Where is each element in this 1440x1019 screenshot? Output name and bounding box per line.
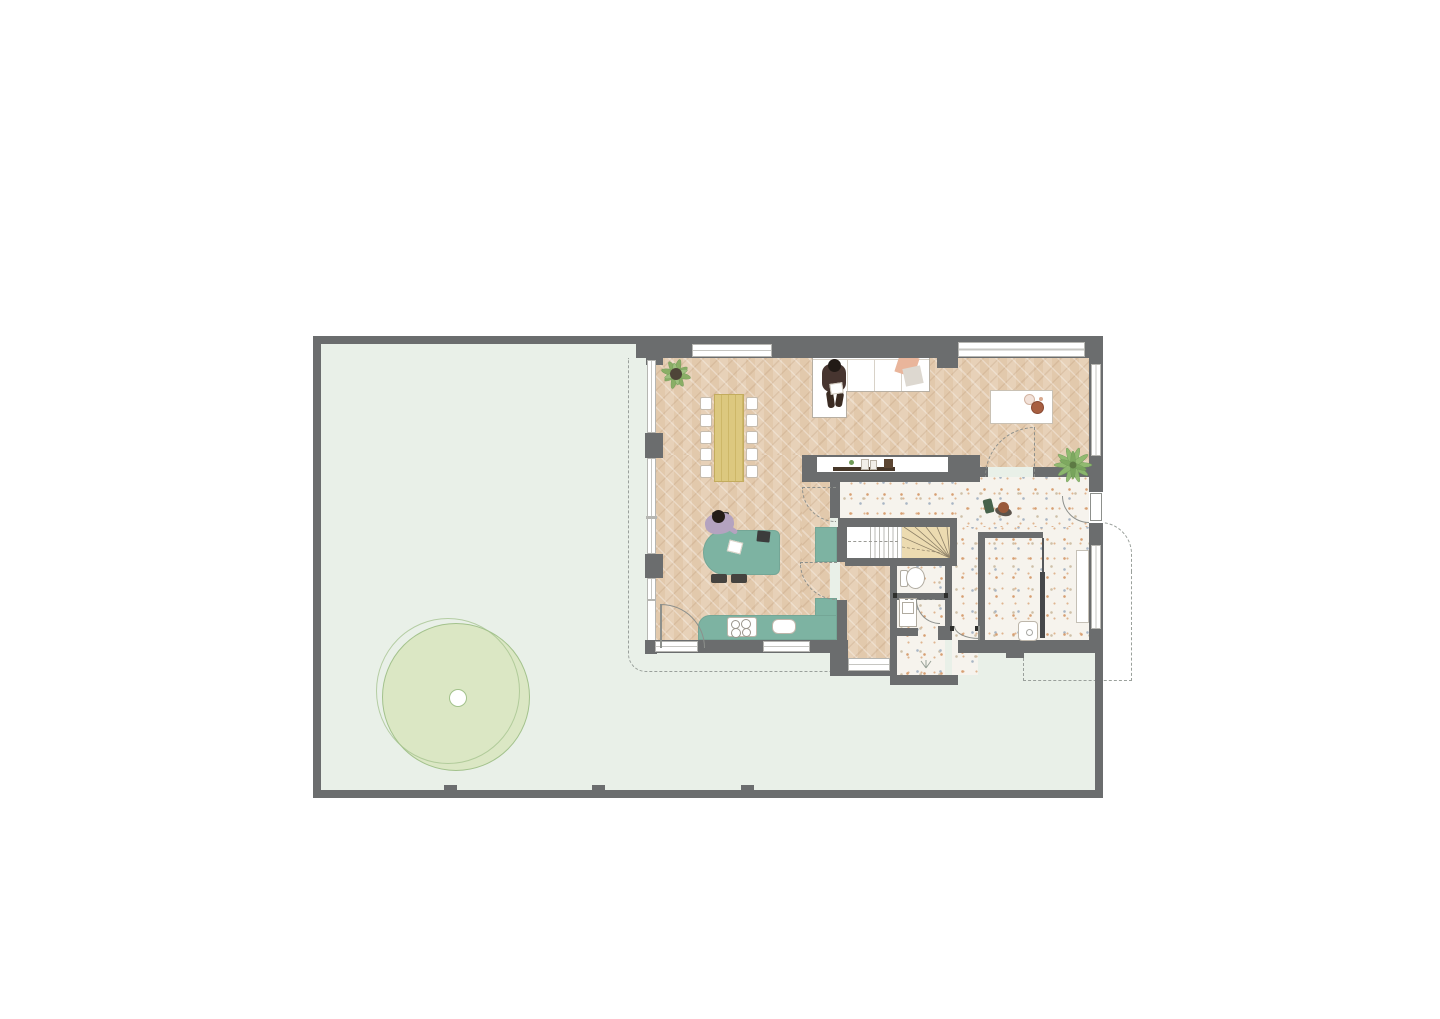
stairs-direction-dash xyxy=(848,541,898,542)
boundary-pier xyxy=(741,785,754,790)
garden-tree-canopy-2 xyxy=(376,618,520,764)
book-on-lap xyxy=(829,382,843,395)
stair-left-wall xyxy=(837,527,847,562)
window-mullion xyxy=(646,516,657,519)
dining-chair xyxy=(700,431,712,444)
corridor-corner-wall xyxy=(830,640,848,676)
office-pier xyxy=(957,455,980,482)
niche-frame xyxy=(861,459,869,470)
window-corridor xyxy=(848,658,890,671)
floor-plan-canvas xyxy=(0,0,1440,1019)
storage-top-wall xyxy=(985,532,1043,538)
dining-chair xyxy=(700,397,712,410)
dining-chair xyxy=(746,431,758,444)
boundary-wall-left xyxy=(313,336,321,798)
stair-right-wall xyxy=(950,518,957,566)
window-top-living xyxy=(692,344,772,357)
vestibule-door-leaf xyxy=(978,626,980,640)
stair-bottom-wall xyxy=(845,558,950,566)
window-top-office xyxy=(958,342,1085,357)
front-door-leaf xyxy=(1090,493,1102,521)
dining-chair xyxy=(700,465,712,478)
cooktop-burner xyxy=(742,628,751,637)
niche-frame xyxy=(870,460,877,470)
toilet-bowl xyxy=(906,567,925,589)
office-dot xyxy=(1039,397,1043,401)
hall-opening-leaf-upper xyxy=(802,487,836,488)
cooktop-burner xyxy=(731,628,741,638)
corridor-window-sill xyxy=(848,671,890,676)
left-pier-1 xyxy=(645,433,663,458)
utility-door-leaf-dashed xyxy=(905,599,935,600)
person-in-hall-head xyxy=(998,502,1009,513)
dining-chair xyxy=(746,465,758,478)
floor-hall-upper xyxy=(840,482,957,518)
shower-drain xyxy=(1026,629,1033,636)
window-right-hall xyxy=(1091,545,1101,629)
desk-chair xyxy=(711,574,727,583)
sofa-cushion-gray xyxy=(902,365,923,386)
window-left-2 xyxy=(647,458,656,554)
dining-chair xyxy=(746,414,758,427)
dining-chair xyxy=(700,448,712,461)
boundary-pier xyxy=(444,785,457,790)
boundary-pier xyxy=(592,785,605,790)
wall-step-block xyxy=(937,336,958,368)
potted-plant-icon xyxy=(657,354,695,394)
window-kitchen xyxy=(763,641,810,652)
kitchen-cabinet-upper xyxy=(815,527,837,562)
vestibule-bottom-wall xyxy=(890,675,958,685)
stairs-winder xyxy=(902,527,950,558)
floor-corridor xyxy=(840,562,897,658)
corridor-right-wall xyxy=(890,566,897,676)
dining-table xyxy=(714,394,744,482)
palm-plant-icon xyxy=(1050,443,1096,487)
dining-chair xyxy=(746,397,758,410)
dining-chair xyxy=(700,414,712,427)
garden-door-leaf xyxy=(660,604,662,648)
storage-divider-thin xyxy=(1042,538,1044,572)
niche-speaker xyxy=(884,459,893,468)
entry-canopy-dashed-stub xyxy=(1023,658,1025,681)
kitchen-counter xyxy=(698,615,837,640)
niche-plant-icon xyxy=(849,460,854,465)
hall-bottom-bump xyxy=(1006,653,1024,658)
boundary-wall-right xyxy=(1095,648,1103,798)
storage-divider-thick xyxy=(1040,572,1045,638)
window-left-1 xyxy=(647,360,656,433)
storage-left-wall xyxy=(978,532,985,640)
door-jamb-tick xyxy=(893,593,897,598)
left-pier-2 xyxy=(645,554,663,578)
window-left-3 xyxy=(647,578,656,600)
sofa-seam xyxy=(847,360,848,391)
desk-chair xyxy=(731,574,747,583)
kitchen-back-wall xyxy=(837,600,847,640)
person-on-sofa-head xyxy=(828,359,841,372)
kitchen-sink xyxy=(772,619,796,634)
stairs-treads xyxy=(870,527,902,558)
office-door-leaf-dashed xyxy=(1034,427,1035,477)
window-sill-niche xyxy=(1076,550,1089,623)
stair-top-wall xyxy=(838,518,957,527)
utility-bottom-wall xyxy=(897,628,918,636)
garden-tree-trunk xyxy=(449,689,467,707)
hall-opening-leaf-lower xyxy=(800,562,837,563)
vestibule-sprout-icon xyxy=(919,656,933,670)
boundary-wall-bottom xyxy=(313,790,1103,798)
entry-canopy-dashed-curve xyxy=(1100,522,1132,572)
person-at-desk-head xyxy=(712,510,725,523)
office-cup xyxy=(1031,401,1044,414)
garden-door-threshold xyxy=(647,600,656,645)
hall-bottom-wall xyxy=(958,640,1103,653)
washer-door xyxy=(902,602,914,614)
dining-chair xyxy=(746,448,758,461)
sofa-seam xyxy=(874,360,875,391)
door-jamb-tick xyxy=(944,593,948,598)
laptop-on-desk xyxy=(756,530,770,542)
